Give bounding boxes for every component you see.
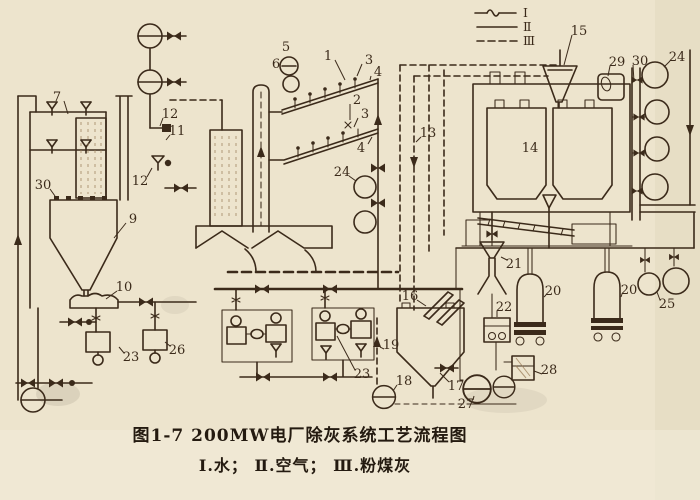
callout-number: 23 [354, 367, 371, 382]
callout-number: 23 [123, 350, 140, 365]
callout-number: 9 [129, 212, 137, 227]
pump-icon [21, 388, 45, 412]
slag-flushing-center [170, 57, 462, 382]
feeder-box [484, 318, 510, 342]
paper-texture [0, 0, 700, 500]
callout-number: 7 [53, 90, 61, 105]
pump-icon [373, 386, 396, 409]
pump-icon [138, 70, 162, 94]
flushing-tank [196, 226, 332, 272]
slag-hopper [50, 200, 117, 296]
water-tank [354, 211, 376, 233]
scanned-diagram-page: ⅠⅡⅢ [0, 0, 700, 500]
callout-leader [370, 76, 371, 80]
callout-number: 4 [374, 65, 382, 80]
legend-numeral: Ⅲ [523, 33, 535, 48]
figure-caption-legend: Ⅰ.水； Ⅱ.空气； Ⅲ.粉煤灰 [199, 456, 411, 475]
ash-pump-group [312, 308, 374, 360]
callout-leader [417, 300, 426, 306]
callout-number: 15 [571, 24, 588, 39]
callout-number: 22 [496, 300, 513, 315]
callout-leader [335, 60, 345, 80]
callout-number: 1 [324, 49, 332, 64]
legend-numeral: Ⅰ [523, 5, 528, 20]
ash-feeder-funnel [478, 242, 506, 294]
ash-distributor-funnel [543, 50, 577, 108]
callout-number: 12 [162, 107, 179, 122]
pneumatic-ash-system [400, 50, 695, 404]
slag-pump-box [86, 332, 110, 352]
callout-leader [564, 35, 572, 65]
callout-number: 11 [169, 124, 186, 139]
callout-leader [357, 64, 362, 76]
callout-number: 4 [357, 141, 365, 156]
callout-number: 12 [132, 174, 149, 189]
process-flow-diagram: ⅠⅡⅢ [0, 0, 700, 500]
callout-labels: 1342345679101112121314151617181920202122… [35, 24, 686, 412]
callout-number: 3 [361, 107, 369, 122]
callout-number: 17 [448, 379, 465, 394]
callout-leader [337, 336, 355, 370]
callout-number: 16 [402, 289, 419, 304]
callout-number: 27 [458, 397, 475, 412]
callout-number: 24 [669, 50, 686, 65]
water-tank [354, 176, 376, 198]
callout-number: 28 [541, 363, 558, 378]
ash-pump-group [222, 310, 292, 362]
slag-pump-box [143, 330, 167, 350]
ash-silo [473, 72, 630, 248]
callout-leader [114, 223, 126, 238]
legend-numeral: Ⅱ [523, 19, 532, 34]
callout-number: 14 [522, 141, 539, 156]
callout-leader [354, 118, 358, 127]
callout-number: 30 [632, 54, 649, 69]
callout-number: 3 [365, 53, 373, 68]
callout-number: 29 [609, 55, 626, 70]
pressure-ash-vessel [591, 248, 623, 341]
callout-number: 24 [334, 165, 351, 180]
legend-labels: ⅠⅡⅢ [523, 5, 535, 48]
callout-number: 18 [396, 374, 413, 389]
callout-number: 2 [353, 93, 361, 108]
callout-number: 26 [169, 343, 186, 358]
pump-icon [138, 24, 162, 48]
callout-number: 30 [35, 178, 52, 193]
callout-leader [368, 137, 372, 144]
callout-number: 25 [659, 297, 676, 312]
figure-caption: 图1-7 200MW电厂除灰系统工艺流程图 [132, 425, 467, 446]
callout-number: 19 [383, 338, 400, 353]
callout-number: 5 [282, 40, 290, 55]
legend: ⅠⅡⅢ [475, 5, 535, 48]
under-silo-conveyor [462, 212, 632, 246]
callout-number: 20 [621, 283, 638, 298]
callout-number: 20 [545, 284, 562, 299]
callout-number: 13 [420, 126, 437, 141]
callout-number: 10 [116, 280, 133, 295]
callout-number: 21 [506, 257, 523, 272]
callout-number: 6 [272, 57, 280, 72]
